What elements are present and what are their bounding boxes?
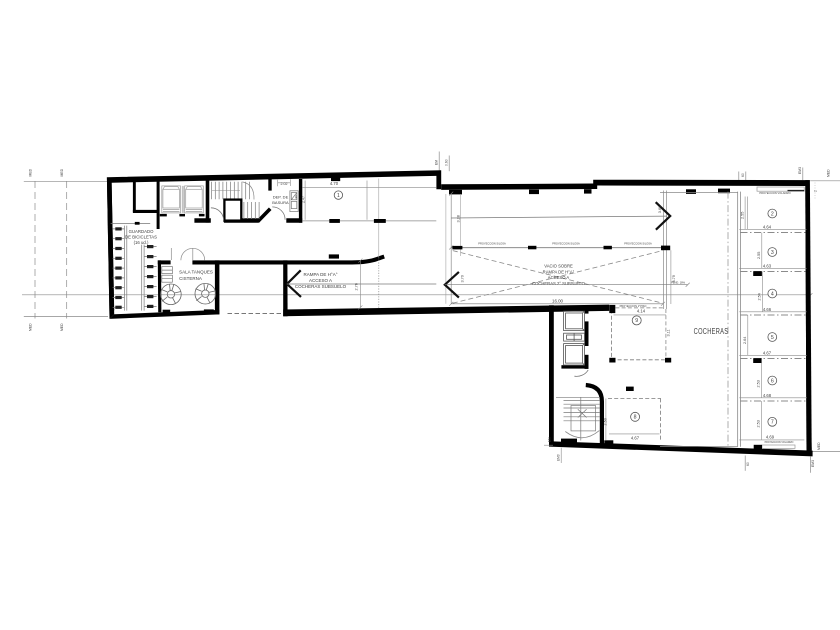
svg-text:3: 3 xyxy=(771,250,774,256)
svg-text:DEP. DE: DEP. DE xyxy=(273,195,289,200)
svg-text:PROYECCION VOLADIZO: PROYECCION VOLADIZO xyxy=(759,191,790,195)
svg-text:4: 4 xyxy=(771,291,774,297)
svg-text:COCHERAS: COCHERAS xyxy=(694,328,729,336)
svg-text:6: 6 xyxy=(771,378,774,384)
svg-text:4.68: 4.68 xyxy=(763,393,772,398)
svg-text:2: 2 xyxy=(771,211,774,217)
svg-text:EM3: EM3 xyxy=(557,454,561,461)
svg-text:BASURA: BASURA xyxy=(272,200,289,205)
svg-text:2.53: 2.53 xyxy=(757,420,761,427)
svg-text:COCHERAS 2° SUBSUELO: COCHERAS 2° SUBSUELO xyxy=(532,281,586,286)
svg-text:4.69: 4.69 xyxy=(766,434,775,439)
svg-text:8: 8 xyxy=(634,415,637,421)
svg-text:EM3: EM3 xyxy=(811,460,815,467)
svg-text:MED: MED xyxy=(817,442,821,450)
svg-text:7: 7 xyxy=(771,420,774,426)
svg-text:RAMPA DE H°A°: RAMPA DE H°A° xyxy=(303,272,337,277)
svg-text:2.54: 2.54 xyxy=(758,293,762,300)
svg-text:VACIO SOBRE: VACIO SOBRE xyxy=(544,264,573,269)
svg-text:4.14: 4.14 xyxy=(637,309,646,314)
svg-text:9: 9 xyxy=(635,318,638,324)
svg-text:90: 90 xyxy=(294,195,298,199)
svg-text:SALA TANQUES: SALA TANQUES xyxy=(179,270,213,275)
svg-text:0.60: 0.60 xyxy=(444,159,448,166)
svg-text:3.28: 3.28 xyxy=(456,215,460,222)
svg-text:MED: MED xyxy=(60,168,64,176)
svg-text:2.50: 2.50 xyxy=(604,418,608,425)
svg-text:60: 60 xyxy=(741,173,745,177)
svg-text:PROYECCION S/LOSA: PROYECCION S/LOSA xyxy=(552,241,580,245)
svg-text:5: 5 xyxy=(771,335,774,341)
svg-text:COCHERAS SUBSUELO: COCHERAS SUBSUELO xyxy=(295,284,347,289)
svg-text:CISTERNA: CISTERNA xyxy=(179,276,202,281)
svg-text:2.76: 2.76 xyxy=(354,283,358,290)
svg-text:4.67: 4.67 xyxy=(763,350,772,355)
svg-text:PROYECCION VOLADIZO: PROYECCION VOLADIZO xyxy=(765,441,794,444)
svg-text:PROYECCION S/LOSA: PROYECCION S/LOSA xyxy=(624,241,652,245)
svg-text:4.64: 4.64 xyxy=(763,224,772,229)
svg-text:MED: MED xyxy=(29,323,33,331)
svg-text:(16 ud.): (16 ud.) xyxy=(134,240,149,245)
svg-text:4.67: 4.67 xyxy=(631,435,640,440)
svg-text:4.70: 4.70 xyxy=(330,181,339,186)
svg-text:4.63: 4.63 xyxy=(763,263,772,268)
svg-text:3.70: 3.70 xyxy=(461,275,465,282)
svg-text:2: 2 xyxy=(814,190,818,192)
svg-text:MED: MED xyxy=(827,169,831,177)
svg-text:4.66: 4.66 xyxy=(763,307,772,312)
svg-text:60: 60 xyxy=(746,462,750,466)
svg-text:2.55: 2.55 xyxy=(757,252,761,259)
svg-text:3.60: 3.60 xyxy=(658,206,662,213)
svg-text:EM: EM xyxy=(547,437,551,442)
svg-text:MED: MED xyxy=(60,323,64,331)
svg-text:PROYECCION S/LOSA: PROYECCION S/LOSA xyxy=(478,241,506,245)
svg-text:2.02: 2.02 xyxy=(281,182,288,186)
svg-text:DE BICICLETAS: DE BICICLETAS xyxy=(125,234,157,239)
svg-text:EM: EM xyxy=(434,160,438,165)
svg-text:2.64: 2.64 xyxy=(743,337,747,344)
svg-text:1: 1 xyxy=(337,193,340,199)
svg-text:MED: MED xyxy=(29,168,33,176)
svg-text:GUARDADO: GUARDADO xyxy=(129,229,154,234)
svg-text:.RAMPA DE H°A°.: .RAMPA DE H°A°. xyxy=(542,269,576,274)
svg-text:PROYECCION 1°PISO: PROYECCION 1°PISO xyxy=(620,304,647,308)
svg-text:ACCESO A: ACCESO A xyxy=(309,278,332,283)
svg-text:16.00: 16.00 xyxy=(552,299,564,304)
svg-text:EM3: EM3 xyxy=(798,167,802,174)
svg-text:2.53: 2.53 xyxy=(757,380,761,387)
svg-text:ACCESO A: ACCESO A xyxy=(548,275,570,280)
svg-text:2.55: 2.55 xyxy=(740,212,744,219)
svg-text:3.11: 3.11 xyxy=(667,329,671,336)
svg-text:3.79: 3.79 xyxy=(672,275,676,282)
